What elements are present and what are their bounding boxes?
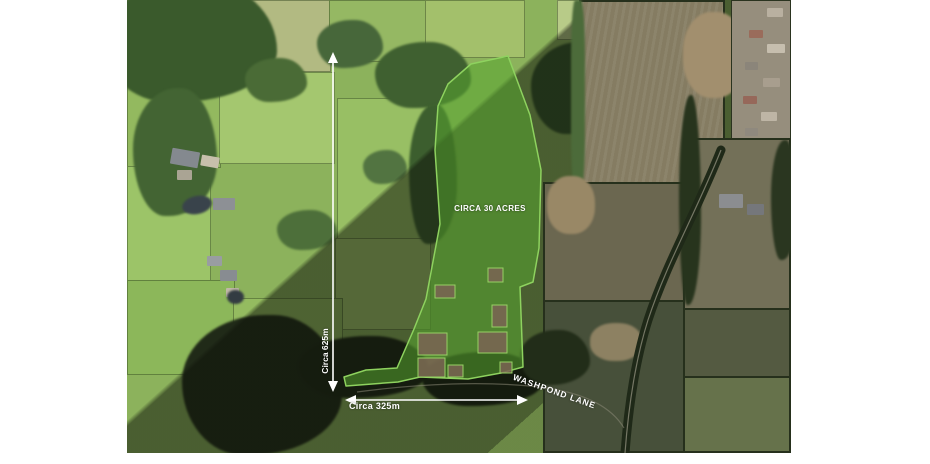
aerial-photo: CIRCA 30 ACRES Circa 625m Circa 325m WAS… <box>127 0 791 453</box>
annotation-layer <box>127 0 791 453</box>
horizontal-measurement-label: Circa 325m <box>349 401 400 411</box>
country-lane <box>625 150 721 453</box>
parcel-area-label: CIRCA 30 ACRES <box>445 204 535 213</box>
page-background: CIRCA 30 ACRES Circa 625m Circa 325m WAS… <box>0 0 930 464</box>
country-lane-surface <box>625 150 721 453</box>
vertical-measurement-label: Circa 625m <box>320 309 330 393</box>
